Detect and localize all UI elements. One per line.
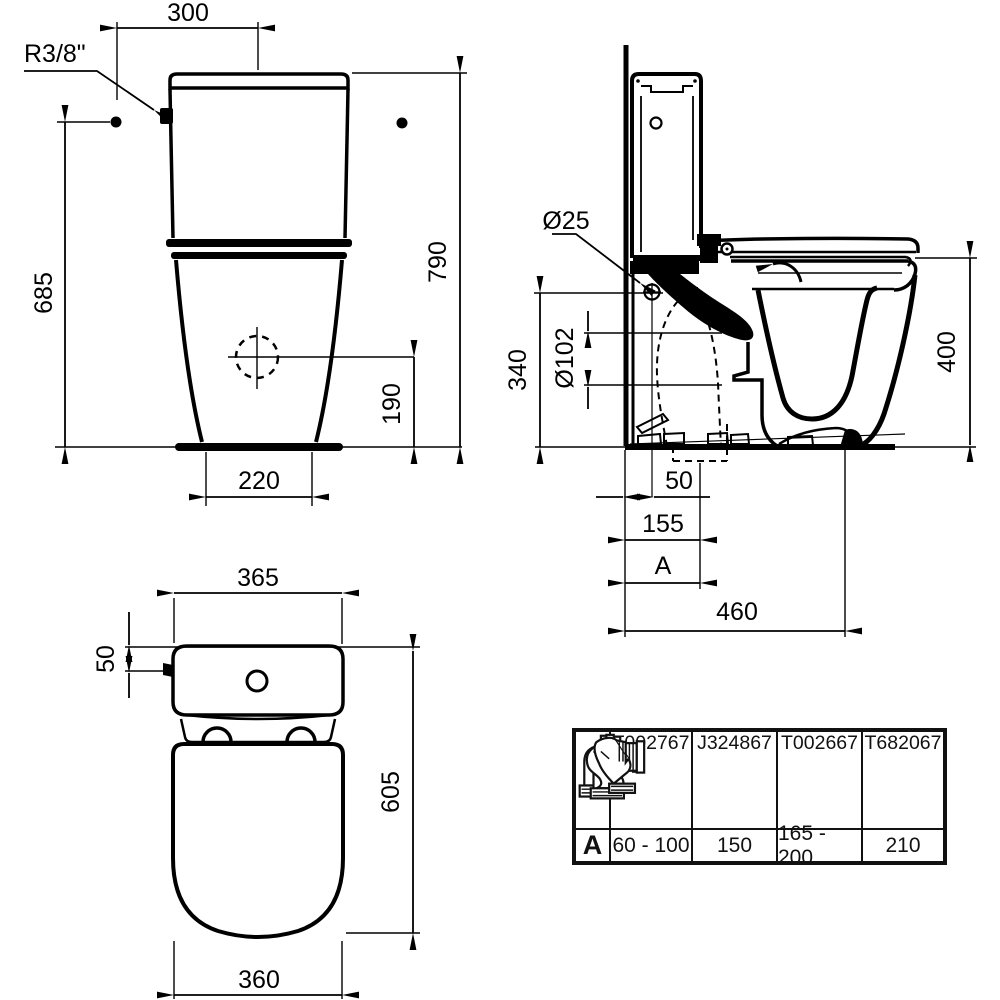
- table-header-j324867: J324867: [693, 732, 776, 828]
- technical-drawing-page: 300 R3/8" 685 790 190 220: [0, 0, 1000, 1000]
- dim-460-label: 460: [716, 598, 758, 626]
- dim-360-label: 360: [238, 966, 280, 994]
- water-inlet-top: [163, 663, 173, 677]
- value-t682067: 210: [863, 830, 943, 861]
- value-j324867: 150: [693, 830, 776, 861]
- value-t002667: 165 - 200: [778, 830, 861, 861]
- inlet-thread-label: R3/8": [24, 40, 86, 68]
- dim-155-label: 155: [642, 510, 684, 538]
- table-row-label: A: [576, 830, 609, 861]
- dim-300-label: 300: [167, 0, 209, 27]
- dim-A-label: A: [655, 552, 672, 580]
- table-header-t002667: T002667: [778, 732, 861, 828]
- dim-220-label: 220: [238, 467, 280, 495]
- dim-190-label: 190: [378, 383, 406, 425]
- dim-340-label: 340: [504, 349, 532, 391]
- connector-table: T002767 J324867: [572, 728, 947, 865]
- dim-790-label: 790: [424, 241, 452, 283]
- dim-400-label: 400: [933, 331, 961, 373]
- part-number: T002667: [781, 733, 858, 754]
- top-view-drawing: [163, 646, 343, 937]
- dim-605-label: 605: [377, 771, 405, 813]
- dim-685-label: 685: [30, 272, 58, 314]
- dim-50-top-label: 50: [92, 645, 120, 673]
- supply-position-dot-left: [111, 117, 122, 128]
- part-number: J324867: [697, 733, 772, 754]
- value-t002767: 60 - 100: [611, 830, 691, 861]
- dim-o102-label: Ø102: [551, 327, 579, 388]
- flush-button: [247, 671, 267, 691]
- top-view-dimensions: 365 50 605 360: [92, 564, 420, 999]
- dim-o25-label: Ø25: [542, 207, 589, 235]
- dim-365-label: 365: [237, 564, 279, 592]
- table-header-t682067: T682067: [863, 732, 943, 828]
- supply-position-dot-right: [397, 118, 408, 129]
- part-number: T682067: [865, 733, 942, 754]
- seat-outline: [173, 744, 343, 937]
- water-inlet-front: [160, 108, 173, 124]
- cistern-screw-hole: [651, 118, 662, 129]
- angled-connector-icon: [576, 732, 646, 804]
- side-view-dimensions: Ø25 340 Ø102 400 50 155 A 460: [504, 207, 977, 637]
- dim-50-side-label: 50: [665, 467, 693, 495]
